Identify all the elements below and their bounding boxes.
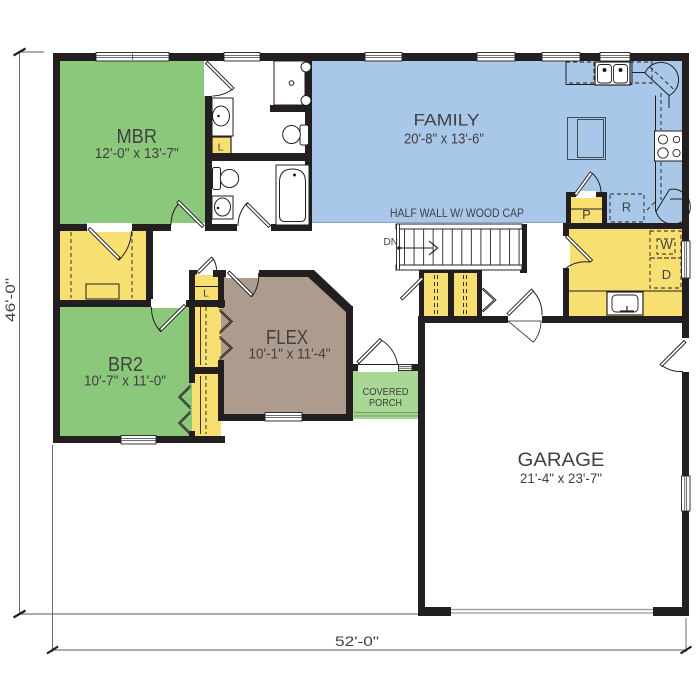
svg-text:DN: DN (384, 237, 398, 248)
svg-text:21'-4" x 23'-7": 21'-4" x 23'-7" (520, 470, 602, 486)
svg-text:10'-1" x 11'-4": 10'-1" x 11'-4" (249, 347, 331, 363)
svg-text:20'-8" x 13'-6": 20'-8" x 13'-6" (404, 132, 484, 148)
svg-text:MBR: MBR (117, 126, 158, 148)
svg-text:10'-7" x 11'-0": 10'-7" x 11'-0" (84, 374, 166, 390)
svg-text:FAMILY: FAMILY (414, 111, 480, 130)
svg-text:46'-0": 46'-0" (3, 278, 18, 322)
svg-text:PORCH: PORCH (369, 398, 402, 409)
svg-text:L: L (218, 142, 224, 154)
svg-text:HALF WALL W/ WOOD CAP: HALF WALL W/ WOOD CAP (390, 206, 524, 220)
svg-text:12'-0" x 13'-7": 12'-0" x 13'-7" (95, 146, 179, 162)
svg-text:D: D (662, 267, 671, 282)
svg-text:R: R (622, 200, 631, 215)
svg-text:L: L (203, 288, 209, 300)
svg-text:GARAGE: GARAGE (518, 450, 605, 471)
svg-text:52'-0": 52'-0" (335, 634, 379, 649)
svg-text:COVERED: COVERED (363, 387, 409, 398)
svg-text:P: P (582, 207, 591, 222)
svg-text:W: W (660, 237, 673, 252)
